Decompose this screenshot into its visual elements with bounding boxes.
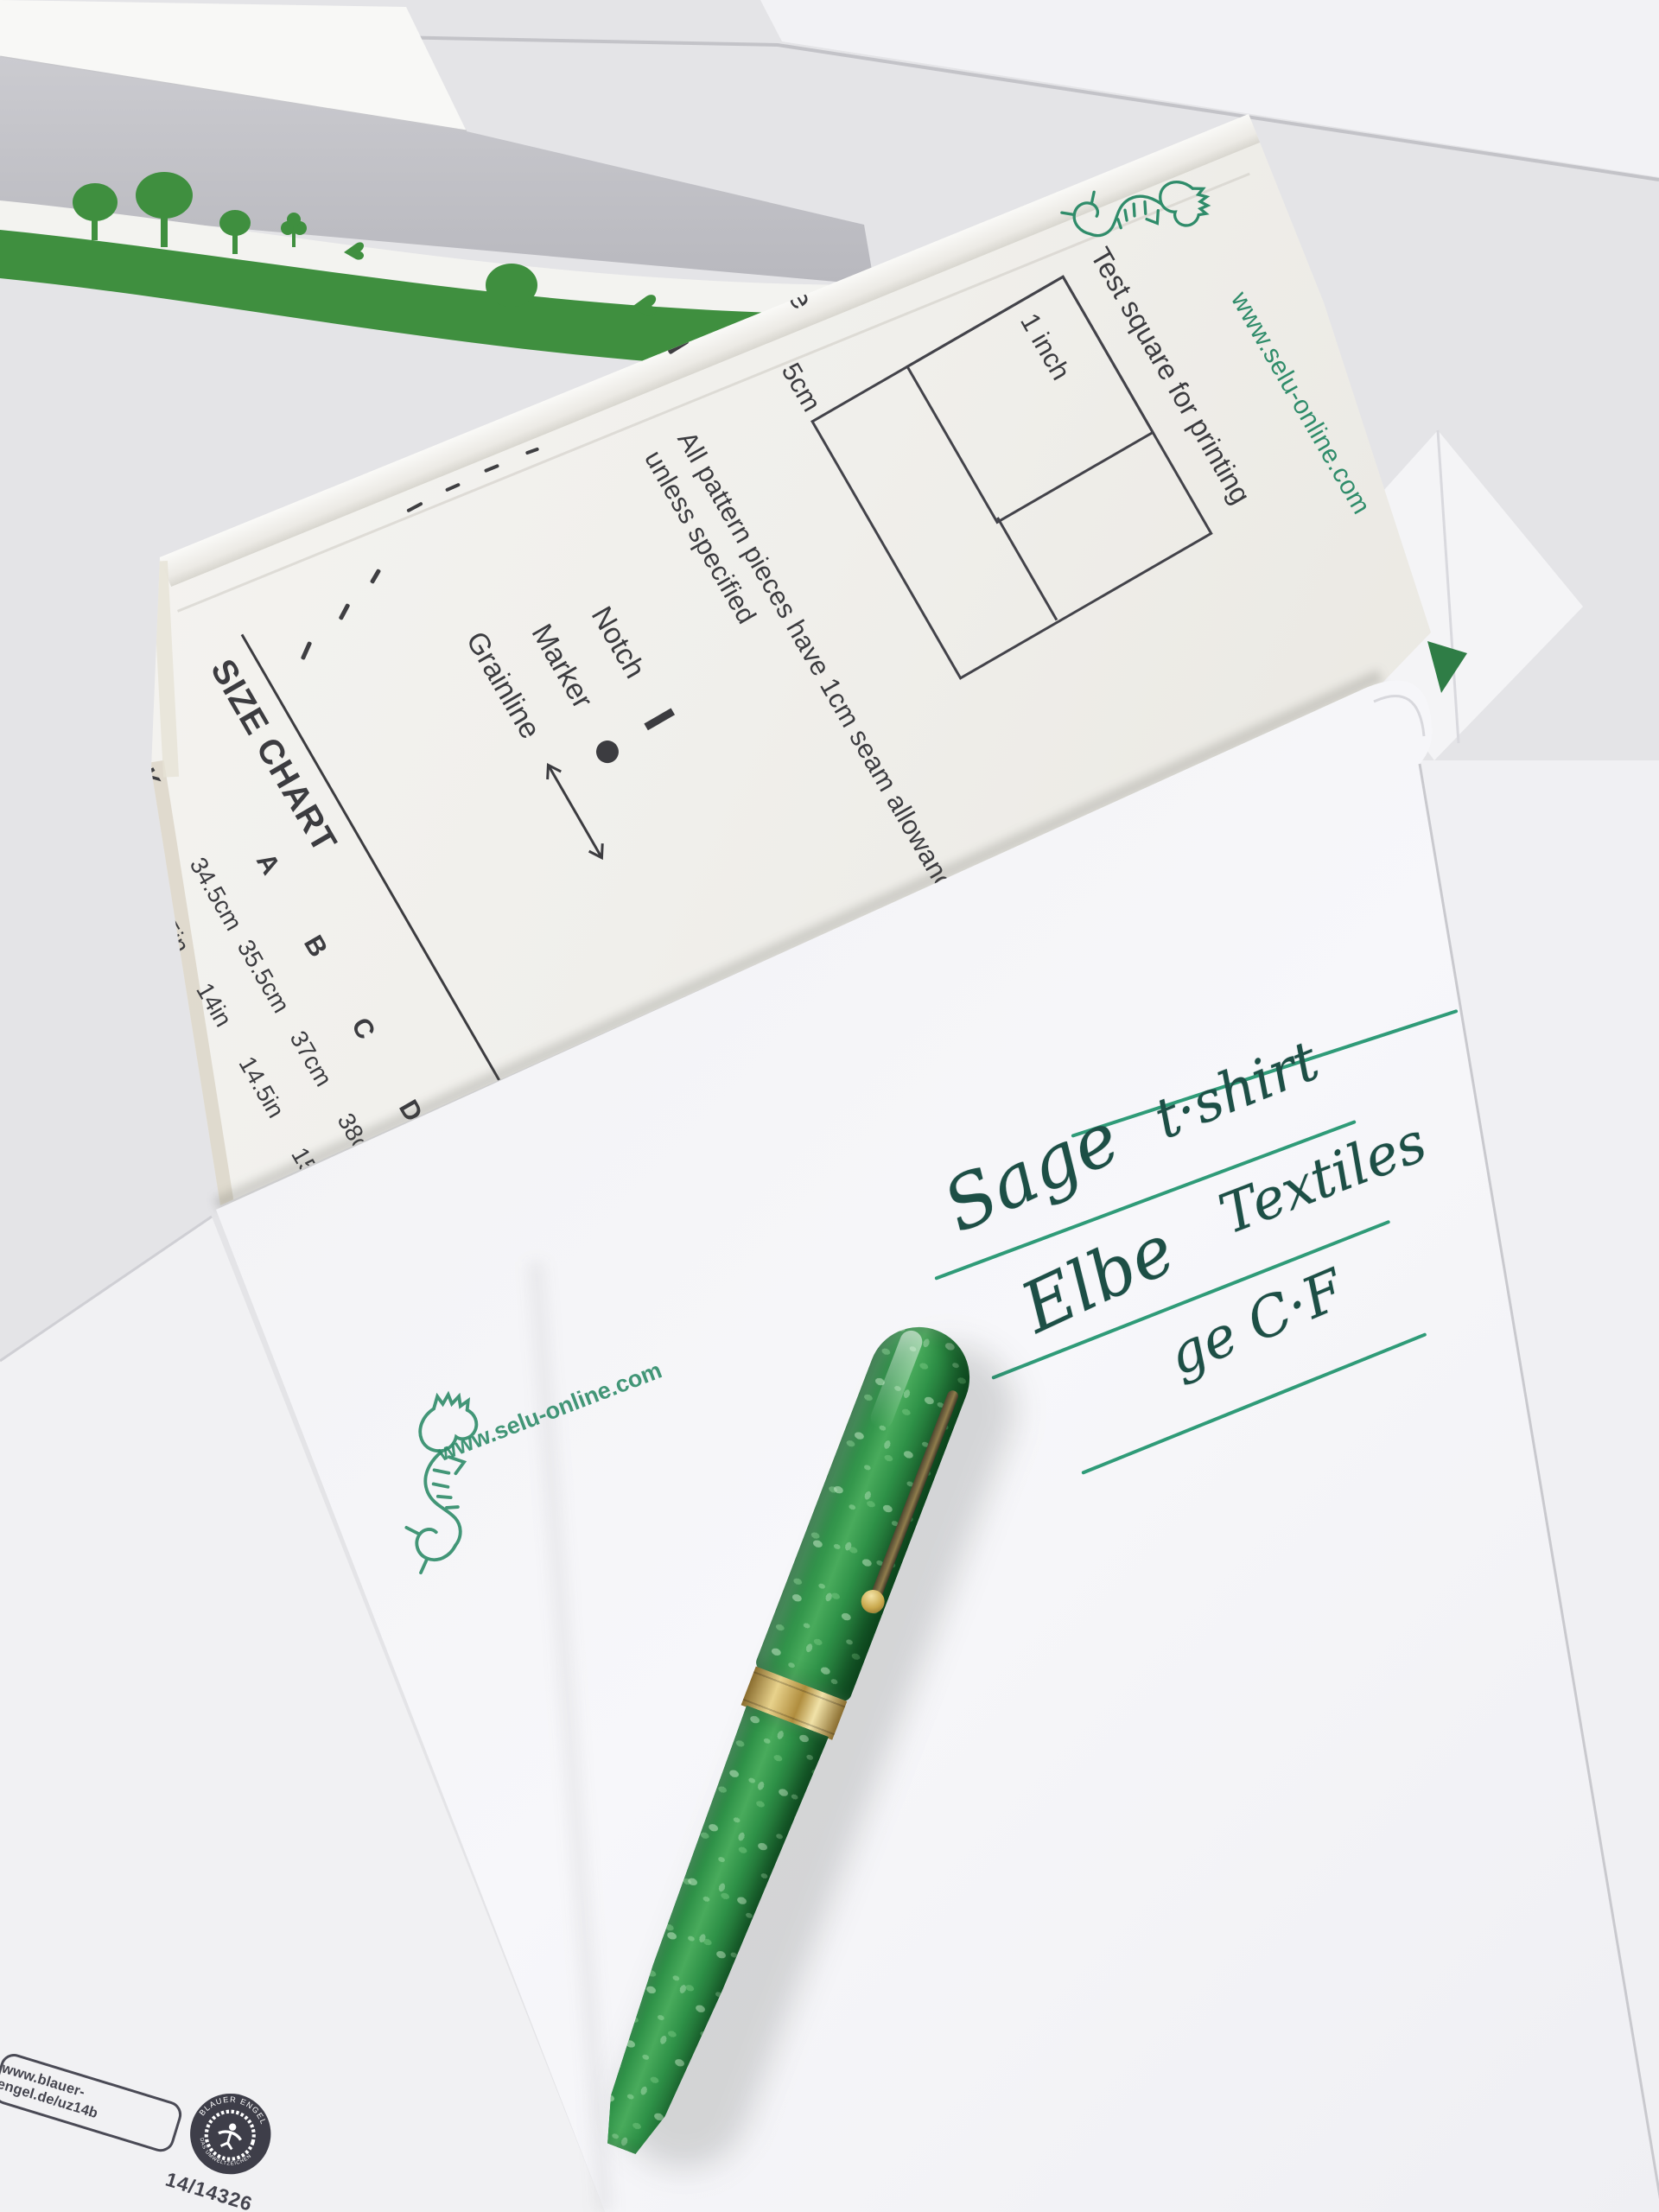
handwriting-word: Elbe xyxy=(1009,1209,1186,1348)
legend-notch-label: Notch xyxy=(510,473,652,684)
blauer-engel-url: www.blauer-engel.de/uz14b xyxy=(0,2060,180,2145)
outer-square-label: 5cm xyxy=(757,327,827,417)
back-flap-crease xyxy=(1438,430,1459,743)
blauer-engel-print-cluster: www.blauer-engel.de/uz14b BLAUER ENGEL D… xyxy=(0,2032,308,2212)
envelope-right-edge xyxy=(1420,764,1659,2212)
photo-scene: www.blauer-engel.de/uz14b BLAUER ENGEL D… xyxy=(0,0,1659,2212)
size-column-header: E xyxy=(435,1169,481,1217)
tree-icon xyxy=(219,210,251,254)
neck-in-value: 14.5in xyxy=(229,1045,295,1130)
size-column-header: D xyxy=(388,1087,434,1135)
neck-cm-value: 38cm xyxy=(326,1098,391,1184)
clover-icon xyxy=(281,213,307,247)
neck-in-value: 14in xyxy=(181,963,247,1048)
eco-band-silhouettes xyxy=(73,172,656,323)
eco-band-white-strip xyxy=(0,200,874,315)
seahorse-logo-icon xyxy=(367,1376,533,1591)
size-column-header: B xyxy=(293,922,339,970)
tree-icon xyxy=(136,172,193,247)
eco-flap-edge xyxy=(0,57,467,131)
size-chart-title: SIZE CHART xyxy=(202,653,344,860)
neck-in-value: 15in xyxy=(276,1127,342,1212)
size-column-header: C xyxy=(340,1004,386,1052)
eco-envelope-inner xyxy=(0,57,874,285)
handwriting-word: ge C·F xyxy=(1160,1258,1354,1389)
right-paper-strip xyxy=(1410,760,1659,2212)
neck-cm-value: 39.5cm xyxy=(373,1180,439,1266)
fountain-pen xyxy=(575,1312,986,2168)
neck-in-value: 13.5in xyxy=(134,880,200,965)
handwriting-word: Sage xyxy=(931,1095,1132,1249)
tree-icon xyxy=(73,183,118,240)
blauer-engel-logo: BLAUER ENGEL DAS UMWELTZEICHEN xyxy=(176,2080,284,2188)
neck-cm-value: 34.5cm xyxy=(183,851,249,937)
blauer-engel-url-box: www.blauer-engel.de/uz14b xyxy=(0,2050,185,2155)
table-crease xyxy=(0,29,1659,180)
flap-seam-curve xyxy=(1374,696,1424,736)
neck-cm-value: 37cm xyxy=(278,1016,344,1102)
size-column-header: A xyxy=(245,840,291,888)
bottom-envelope-edge xyxy=(0,1217,212,1361)
neck-cm-value: 35.5cm xyxy=(231,934,296,1020)
eco-envelope-flap xyxy=(0,0,467,131)
tree-icon xyxy=(486,264,537,323)
size-chart-row-label: NECK xyxy=(103,715,166,795)
neck-in-value: 15.5in xyxy=(324,1209,390,1294)
marker-dot-icon xyxy=(592,736,623,767)
notch-symbol-icon xyxy=(644,709,675,731)
butterfly-icon xyxy=(344,242,364,259)
butterfly-icon xyxy=(631,295,656,316)
handwriting-word: t·shirt xyxy=(1146,1029,1327,1152)
green-tissue-peek xyxy=(1427,641,1467,693)
grainline-arrow-icon xyxy=(536,753,614,868)
